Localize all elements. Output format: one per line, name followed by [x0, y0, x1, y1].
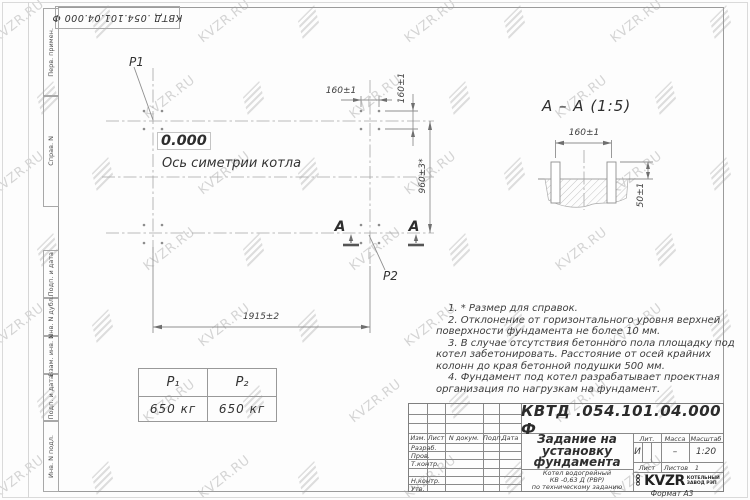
top-designation-text: КВТД .054.101.04.000 Ф: [52, 12, 182, 23]
col-header-izm: Изм.: [409, 434, 427, 442]
col-header-podp: Подп.: [483, 434, 499, 442]
kvzr-logo-text: KVZR: [644, 473, 685, 489]
section-letter-left: А: [332, 219, 348, 235]
load-table-value-p1: 650 кг: [139, 396, 207, 421]
section-dim-160: 160±1: [562, 128, 606, 138]
lit-header: Лит.: [633, 435, 661, 443]
row-prov: Пров.: [411, 452, 430, 460]
load-table: Р₁ Р₂ 650 кг 650 кг: [138, 368, 277, 422]
technical-notes: 1. * Размер для справок. 2. Отклонение о…: [436, 303, 750, 395]
load-table-header-p1: Р₁: [139, 369, 207, 396]
margin-box-podp-data-2: Подп. и дата: [43, 373, 59, 422]
load-point-p1-label: P1: [129, 55, 144, 69]
document-title: Задание на установку фундамента: [521, 434, 633, 468]
load-table-value-p2: 650 кг: [207, 396, 276, 421]
scale-header: Масштаб: [689, 435, 723, 443]
dim-1915: 1915±2: [221, 312, 301, 322]
row-razrab: Разраб.: [411, 444, 437, 452]
margin-box-vzam-inv: Взам. инв. N: [43, 335, 59, 375]
drawing-sheet: KVZR.RUKVZR.RUKVZR.RUKVZR.RUKVZR.RUKVZR.…: [0, 0, 750, 500]
kvzr-logo: ООО KVZR КОТЕЛЬНЫЙ ЗАВОД РЭП: [635, 472, 721, 490]
grid-line: [409, 423, 521, 424]
col-header-list: Лист: [427, 434, 445, 442]
margin-box-inv-podl: Инв. N подл.: [43, 420, 59, 492]
note-3: 3. В случае отсутствия бетонного пола пл…: [436, 338, 750, 373]
grid-line: [409, 414, 521, 415]
margin-box-podp-data-1: Подп. и дата: [43, 250, 59, 299]
kvzr-logo-caption: КОТЕЛЬНЫЙ ЗАВОД РЭП: [687, 476, 720, 486]
load-table-header-p2: Р₂: [207, 369, 276, 396]
grid-line: [483, 404, 484, 491]
section-dim-50: 50±1: [636, 173, 646, 217]
massa-value: –: [661, 447, 689, 457]
margin-box-perv-primen: Перв. примен.: [43, 8, 59, 97]
col-header-ndoc: N докум.: [445, 434, 483, 442]
note-2: 2. Отклонение от горизонтального уровня …: [436, 315, 750, 338]
row-tkontr: Т.контр.: [411, 460, 439, 468]
section-letter-right: А: [406, 219, 422, 235]
massa-header: Масса: [661, 435, 689, 443]
level-mark-label: 0.000: [157, 132, 211, 150]
boiler-symmetry-axis-label: Ось симетрии котла: [162, 156, 301, 171]
lit-value: И: [633, 447, 642, 457]
grid-line: [651, 442, 652, 462]
note-1: 1. * Размер для справок.: [436, 303, 750, 315]
dim-960: 960±3*: [418, 154, 428, 198]
boiler-subtitle: Котел водогрейный КВ -0,63 Д (РВР) по те…: [521, 470, 633, 491]
title-block: Изм. Лист N докум. Подп. Дата Разраб. Пр…: [408, 403, 724, 492]
logo-ooo-text: ООО: [636, 475, 642, 486]
dim-160-vertical: 160±1: [397, 66, 407, 110]
format-label: Формат А3: [644, 489, 700, 498]
row-utv: Утв.: [411, 485, 425, 493]
note-4: 4. Фундамент под котел разрабатывает про…: [436, 372, 750, 395]
dim-160-horizontal: 160±1: [320, 86, 362, 96]
load-point-p2-label: P2: [383, 269, 398, 283]
scale-value: 1:20: [689, 447, 723, 457]
col-header-data: Дата: [499, 434, 521, 442]
margin-box-sprav-n: Справ. N: [43, 95, 59, 207]
sheet-header: Лист: [633, 464, 661, 472]
sheets-value: 1: [685, 464, 709, 472]
top-designation-box: КВТД .054.101.04.000 Ф: [55, 6, 180, 29]
section-view-title: А – А (1:5): [542, 97, 631, 115]
grid-line: [445, 404, 446, 491]
margin-box-inv-dubl: Инв. N дубл.: [43, 297, 59, 337]
row-nkontr: Н.контр.: [411, 477, 440, 485]
document-designation: КВТД .054.101.04.000 Ф: [521, 407, 723, 433]
grid-line: [409, 468, 521, 469]
binding-margin-line: [28, 2, 29, 498]
grid-line: [642, 442, 643, 462]
grid-line: [499, 404, 500, 491]
